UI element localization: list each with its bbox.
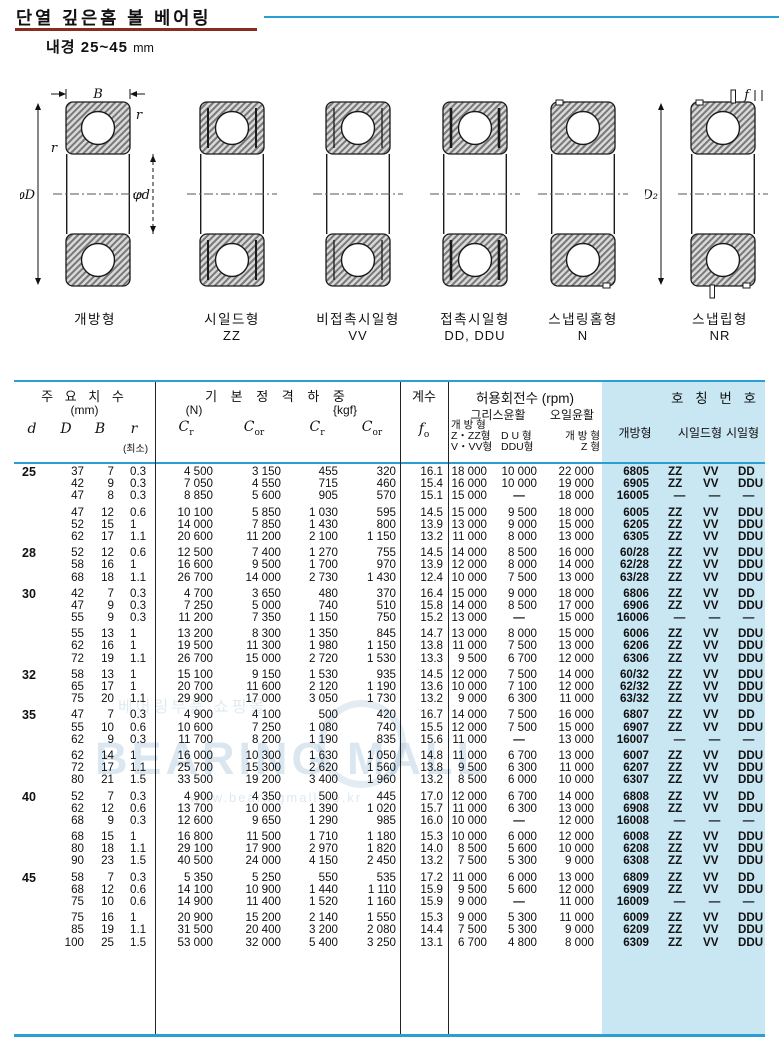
cell-cor-n: 4 100 [217, 709, 285, 721]
cell-cor-kgf: 595 [342, 507, 400, 519]
cell-cr-n: 11 200 [155, 612, 217, 624]
cell-d: 40 [14, 791, 50, 803]
header-rpm-title: 허용회전수 (rpm) [448, 387, 602, 407]
cell-d: 30 [14, 588, 50, 600]
cell-D: 100 [50, 937, 88, 949]
figure-noncontact-seal-type: 비접촉시일형 VV [308, 88, 408, 343]
cell-suffix-zz: ZZ [662, 937, 697, 949]
header-cr-n: Cr [160, 419, 212, 438]
cell-suffix-seal: — [732, 612, 765, 624]
header-designation-title: 호 칭 번 호 [614, 387, 760, 407]
header-col-B: B [86, 421, 114, 437]
svg-text:r: r [136, 108, 143, 123]
cell-B: 10 [88, 722, 118, 734]
table-row: 90231.540 50024 0004 1502 45013.27 5005 … [14, 855, 765, 867]
cell-cr-n: 8 850 [155, 490, 217, 502]
cell-cr-n: 40 500 [155, 855, 217, 867]
cell-fo: 13.2 [400, 774, 448, 786]
cell-suffix-vv: VV [697, 855, 732, 867]
cell-bearing-no: 16007 [602, 734, 662, 746]
cell-oil-open: 14 000 [542, 559, 602, 571]
cell-cr-kgf: 2 720 [285, 653, 342, 665]
cell-D: 75 [50, 896, 88, 908]
cell-cor-kgf: 2 080 [342, 924, 400, 936]
figure-label: 접촉시일형 [425, 308, 525, 328]
figure-snap-ring-type: fφD₂ 스냅립형 NR [645, 88, 779, 343]
cell-cr-n: 26 700 [155, 572, 217, 584]
cell-d: 25 [14, 466, 50, 478]
cell-suffix-zz: ZZ [662, 559, 697, 571]
cell-cor-kgf: 970 [342, 559, 400, 571]
cell-B: 7 [88, 872, 118, 884]
figure-label: 시일드형 [182, 308, 282, 328]
cell-fo: 15.9 [400, 896, 448, 908]
cell-d [14, 924, 50, 936]
cell-cr-kgf: 550 [285, 872, 342, 884]
cell-d [14, 531, 50, 543]
cell-cor-kgf: 535 [342, 872, 400, 884]
cell-cor-n: 32 000 [217, 937, 285, 949]
cell-cr-n: 16 600 [155, 559, 217, 571]
header-designation-open: 개방형 [605, 424, 665, 441]
figure-sublabel: N [533, 328, 633, 343]
cell-cr-kgf: 1 980 [285, 640, 342, 652]
cell-grease-open: 7 500 [448, 855, 496, 867]
cell-suffix-zz: — [662, 815, 697, 827]
cell-grease-du: 4 800 [496, 937, 542, 949]
cell-oil-open: 13 000 [542, 531, 602, 543]
cell-bearing-no: 6305 [602, 531, 662, 543]
cell-suffix-zz: — [662, 734, 697, 746]
cell-cr-kgf: 3 050 [285, 693, 342, 705]
row-block: 7516120 90015 2002 1401 55015.39 0005 30… [14, 912, 765, 949]
cell-grease-open: 12 000 [448, 559, 496, 571]
cell-B: 10 [88, 896, 118, 908]
cell-cor-kgf: 445 [342, 791, 400, 803]
cell-cr-kgf: 500 [285, 709, 342, 721]
cell-oil-open: 13 000 [542, 734, 602, 746]
cell-suffix-zz: — [662, 490, 697, 502]
divider-after-loads [400, 382, 401, 1034]
cell-grease-open: 11 000 [448, 531, 496, 543]
cell-suffix-vv: VV [697, 774, 732, 786]
cell-oil-open: 15 000 [542, 722, 602, 734]
header-cor-kgf: Cor [344, 419, 400, 438]
cell-D: 62 [50, 734, 88, 746]
cell-suffix-seal: DD [732, 791, 765, 803]
table-row: 6290.311 7008 2001 19083515.611 000—13 0… [14, 734, 765, 746]
cell-suffix-zz: ZZ [662, 709, 697, 721]
cell-bearing-no: 63/32 [602, 693, 662, 705]
cell-oil-open: 9 000 [542, 924, 602, 936]
cell-bearing-no: 6809 [602, 872, 662, 884]
svg-text:r: r [51, 141, 58, 156]
row-block: 5513113 2008 3001 35084514.713 0008 0001… [14, 628, 765, 665]
cell-d [14, 937, 50, 949]
cell-fo: 13.2 [400, 855, 448, 867]
cell-grease-open: 12 000 [448, 722, 496, 734]
cell-r: 1.5 [118, 855, 155, 867]
cell-cor-n: 11 400 [217, 896, 285, 908]
cell-suffix-seal: DDU [732, 937, 765, 949]
cell-suffix-seal: — [732, 734, 765, 746]
table-row: 5816116 6009 5001 70097013.912 0008 0001… [14, 559, 765, 571]
bearing-cross-section-n [533, 88, 633, 305]
table-row: 72191.126 70015 0002 7201 53013.39 5006 … [14, 653, 765, 665]
bearing-cross-section-ddu [425, 88, 525, 305]
cell-cor-kgf: 420 [342, 709, 400, 721]
figure-sublabel: NR [645, 328, 779, 343]
cell-r: 1 [118, 628, 155, 640]
cell-D: 62 [50, 531, 88, 543]
cell-d [14, 681, 50, 693]
cell-cor-kgf: 1 730 [342, 693, 400, 705]
cell-D: 47 [50, 507, 88, 519]
cell-suffix-zz: ZZ [662, 924, 697, 936]
cell-grease-open: 9 000 [448, 896, 496, 908]
subtitle-range: 25~45 [81, 39, 128, 56]
cell-D: 68 [50, 572, 88, 584]
cell-cor-n: 20 400 [217, 924, 285, 936]
cell-cr-kgf: 2 100 [285, 531, 342, 543]
bearing-spec-table: 주 요 치 수 (mm) d D B r (최소) 기 본 정 격 하 중 (N… [14, 380, 765, 1037]
cell-suffix-zz: ZZ [662, 791, 697, 803]
cell-grease-open: 11 000 [448, 640, 496, 652]
cell-cr-kgf: 3 200 [285, 924, 342, 936]
cell-grease-open: 11 000 [448, 734, 496, 746]
header-cr-kgf: Cr [291, 419, 343, 438]
cell-grease-du: 5 300 [496, 924, 542, 936]
cell-suffix-seal: DDU [732, 531, 765, 543]
cell-suffix-seal: DDU [732, 774, 765, 786]
cell-d: 28 [14, 547, 50, 559]
cell-suffix-seal: DD [732, 872, 765, 884]
cell-grease-du: 6 000 [496, 774, 542, 786]
cell-oil-open: 18 000 [542, 490, 602, 502]
title-horizontal-rule [264, 16, 779, 18]
cell-r: 1.1 [118, 653, 155, 665]
cell-r: 1.1 [118, 531, 155, 543]
divider-after-dimensions [155, 382, 156, 1034]
catalog-page: { "title": "단열 깊은홈 볼 베어링", "subtitle_lab… [0, 0, 779, 1048]
cell-fo: 14.5 [400, 507, 448, 519]
svg-text:φD: φD [20, 188, 36, 203]
figure-contact-seal-type: 접촉시일형 DD, DDU [425, 88, 525, 343]
row-block: 2852120.612 5007 4001 27075514.514 0008 … [14, 547, 765, 584]
cell-cor-n: 24 000 [217, 855, 285, 867]
cell-d [14, 815, 50, 827]
cell-B: 8 [88, 490, 118, 502]
cell-fo: 17.2 [400, 872, 448, 884]
cell-fo: 15.6 [400, 734, 448, 746]
cell-bearing-no: 16005 [602, 490, 662, 502]
cell-oil-open: 9 000 [542, 855, 602, 867]
cell-cr-kgf: 5 400 [285, 937, 342, 949]
cell-cr-kgf: 1 290 [285, 815, 342, 827]
cell-r: 1 [118, 640, 155, 652]
cell-cr-n: 31 500 [155, 924, 217, 936]
cell-suffix-vv: VV [697, 872, 732, 884]
cell-grease-open: 7 500 [448, 924, 496, 936]
cell-cor-n: 5 600 [217, 490, 285, 502]
cell-oil-open: 18 000 [542, 507, 602, 519]
cell-suffix-vv: VV [697, 653, 732, 665]
grease-open-line3: V・VV형 [451, 442, 499, 453]
cell-d: 35 [14, 709, 50, 721]
cell-r: 0.6 [118, 507, 155, 519]
table-row: 6216119 50011 3001 9801 15013.811 0007 5… [14, 640, 765, 652]
cell-cr-n: 53 000 [155, 937, 217, 949]
header-fo-symbol: fo [400, 421, 448, 440]
cell-grease-du: — [496, 612, 542, 624]
cell-fo: 15.2 [400, 612, 448, 624]
cell-r: 0.6 [118, 896, 155, 908]
oil-open-line2: Z 형 [542, 442, 600, 453]
cell-B: 7 [88, 791, 118, 803]
cell-suffix-vv: VV [697, 709, 732, 721]
cell-bearing-no: 63/28 [602, 572, 662, 584]
cell-cor-n: 9 500 [217, 559, 285, 571]
cell-d [14, 774, 50, 786]
cell-bearing-no: 6808 [602, 791, 662, 803]
cell-B: 23 [88, 855, 118, 867]
cell-B: 9 [88, 815, 118, 827]
cell-grease-du: — [496, 896, 542, 908]
header-grease-open-types: 개 방 형 Z・ZZ형 V・VV형 [451, 420, 499, 453]
cell-fo: 15.1 [400, 490, 448, 502]
cell-d [14, 507, 50, 519]
cell-fo: 13.1 [400, 937, 448, 949]
table-row: 62171.120 60011 2002 1001 15013.211 0008… [14, 531, 765, 543]
cell-d [14, 572, 50, 584]
cell-D: 47 [50, 490, 88, 502]
cell-oil-open: 16 000 [542, 709, 602, 721]
cell-r: 0.6 [118, 722, 155, 734]
table-row: 354770.34 9004 10050042016.714 0007 5001… [14, 709, 765, 721]
figure-sublabel: DD, DDU [425, 328, 525, 343]
cell-cor-kgf: 3 250 [342, 937, 400, 949]
cell-D: 72 [50, 653, 88, 665]
cell-cr-n: 4 900 [155, 709, 217, 721]
cell-cor-n: 7 250 [217, 722, 285, 734]
cell-cor-kgf: 740 [342, 722, 400, 734]
grease-du-line2: DDU형 [501, 442, 545, 453]
cell-bearing-no: 6308 [602, 855, 662, 867]
cell-cr-kgf: 1 700 [285, 559, 342, 571]
cell-grease-open: 15 000 [448, 490, 496, 502]
header-unit-n: (N) [164, 403, 224, 417]
cell-oil-open: 12 000 [542, 815, 602, 827]
bore-range-subtitle: 내경 25~45 mm [46, 36, 154, 57]
figure-label: 비접촉시일형 [308, 308, 408, 328]
figure-label: 스냅립형 [645, 308, 779, 328]
cell-fo: 13.3 [400, 653, 448, 665]
divider-after-factor [448, 382, 449, 1034]
cell-oil-open: 13 000 [542, 640, 602, 652]
cell-suffix-vv: — [697, 896, 732, 908]
row-block: 253770.34 5003 15045532016.118 00010 000… [14, 466, 765, 503]
cell-r: 0.3 [118, 612, 155, 624]
row-block: 405270.34 9004 35050044517.012 0006 7001… [14, 791, 765, 828]
cell-cr-n: 12 600 [155, 815, 217, 827]
cell-cor-kgf: 1 530 [342, 653, 400, 665]
cell-D: 55 [50, 612, 88, 624]
cell-cor-n: 17 000 [217, 693, 285, 705]
cell-d [14, 896, 50, 908]
cell-grease-du: 5 300 [496, 855, 542, 867]
table-row: 68181.126 70014 0002 7301 43012.410 0007… [14, 572, 765, 584]
cell-D: 62 [50, 640, 88, 652]
cell-cr-n: 19 500 [155, 640, 217, 652]
cell-r: 1 [118, 559, 155, 571]
cell-d [14, 762, 50, 774]
cell-grease-open: 8 500 [448, 774, 496, 786]
cell-cor-n: 9 650 [217, 815, 285, 827]
cell-cor-kgf: 1 160 [342, 896, 400, 908]
cell-grease-du: 7 500 [496, 722, 542, 734]
cell-cor-n: 19 200 [217, 774, 285, 786]
cell-cor-kgf: 835 [342, 734, 400, 746]
table-row: 4780.38 8505 60090557015.115 000—18 0001… [14, 490, 765, 502]
cell-oil-open: 11 000 [542, 693, 602, 705]
cell-B: 9 [88, 734, 118, 746]
cell-B: 19 [88, 924, 118, 936]
cell-bearing-no: 6306 [602, 653, 662, 665]
cell-B: 7 [88, 709, 118, 721]
cell-bearing-no: 6907 [602, 722, 662, 734]
cell-d [14, 519, 50, 531]
bearing-cross-section-nr: fφD₂ [645, 88, 779, 305]
header-unit-kgf: {kgf} [315, 403, 375, 417]
cell-r: 1.5 [118, 774, 155, 786]
cell-r: 1.1 [118, 572, 155, 584]
cell-grease-open: 15 000 [448, 507, 496, 519]
cell-cr-kgf: 1 520 [285, 896, 342, 908]
cell-cr-kgf: 905 [285, 490, 342, 502]
cell-r: 0.6 [118, 547, 155, 559]
cell-suffix-zz: ZZ [662, 531, 697, 543]
cell-cr-kgf: 2 730 [285, 572, 342, 584]
cell-cr-kgf: 3 400 [285, 774, 342, 786]
figure-sublabel: VV [308, 328, 408, 343]
cell-cor-n: 4 350 [217, 791, 285, 803]
cell-suffix-seal: DDU [732, 653, 765, 665]
cell-r: 1.5 [118, 937, 155, 949]
cell-bearing-no: 6309 [602, 937, 662, 949]
cell-suffix-seal: DDU [732, 640, 765, 652]
cell-grease-du: 6 000 [496, 872, 542, 884]
cell-cr-n: 10 600 [155, 722, 217, 734]
cell-suffix-seal: DDU [732, 559, 765, 571]
bearing-cross-section-zz [182, 88, 282, 305]
table-row: 100251.553 00032 0005 4003 25013.16 7004… [14, 937, 765, 949]
cell-grease-open: 9 500 [448, 653, 496, 665]
cell-d [14, 884, 50, 896]
cell-grease-du: 9 500 [496, 507, 542, 519]
cell-D: 85 [50, 924, 88, 936]
cell-D: 52 [50, 791, 88, 803]
figure-open-type: BrrφDφd 개방형 [20, 88, 170, 328]
cell-suffix-seal: — [732, 490, 765, 502]
cell-suffix-vv: VV [697, 531, 732, 543]
cell-cor-n: 11 200 [217, 531, 285, 543]
cell-oil-open: 10 000 [542, 774, 602, 786]
page-title: 단열 깊은홈 볼 베어링 [16, 5, 212, 30]
cell-cr-kgf: 1 080 [285, 722, 342, 734]
cell-suffix-zz: ZZ [662, 693, 697, 705]
cell-cr-kgf: 1 190 [285, 734, 342, 746]
header-col-r: r [120, 421, 148, 437]
figure-shield-type: 시일드형 ZZ [182, 88, 282, 343]
cell-suffix-seal: DDU [732, 924, 765, 936]
cell-fo: 13.2 [400, 531, 448, 543]
cell-cor-n: 11 300 [217, 640, 285, 652]
table-row: 47120.610 1005 8501 03059514.515 0009 50… [14, 507, 765, 519]
cell-B: 12 [88, 507, 118, 519]
cell-cr-kgf: 1 030 [285, 507, 342, 519]
cell-d: 32 [14, 669, 50, 681]
cell-grease-du: — [496, 815, 542, 827]
header-cor-n: Cor [223, 419, 285, 438]
cell-r: 0.3 [118, 791, 155, 803]
cell-d [14, 693, 50, 705]
cell-fo: 16.7 [400, 709, 448, 721]
cell-cr-kgf: 4 150 [285, 855, 342, 867]
subtitle-unit: mm [133, 41, 154, 55]
cell-grease-du: 8 000 [496, 559, 542, 571]
cell-fo: 13.8 [400, 640, 448, 652]
cell-grease-open: 10 000 [448, 572, 496, 584]
cell-fo: 16.0 [400, 815, 448, 827]
header-grease-du-types: D U 형 DDU형 [501, 431, 545, 453]
cell-oil-open: 13 000 [542, 572, 602, 584]
cell-suffix-vv: VV [697, 937, 732, 949]
cell-d [14, 831, 50, 843]
cell-D: 68 [50, 815, 88, 827]
cell-bearing-no: 62/28 [602, 559, 662, 571]
cell-suffix-zz: — [662, 896, 697, 908]
row-block: 304270.34 7003 65048037016.415 0009 0001… [14, 588, 765, 625]
cell-suffix-zz: ZZ [662, 653, 697, 665]
cell-D: 90 [50, 855, 88, 867]
cell-grease-du: 7 500 [496, 709, 542, 721]
cell-r: 0.3 [118, 734, 155, 746]
cell-B: 20 [88, 693, 118, 705]
cell-cr-n: 29 900 [155, 693, 217, 705]
cell-grease-open: 10 000 [448, 815, 496, 827]
cell-cr-n: 26 700 [155, 653, 217, 665]
cell-suffix-zz: ZZ [662, 722, 697, 734]
cell-r: 0.3 [118, 815, 155, 827]
cell-cor-kgf: 985 [342, 815, 400, 827]
cell-B: 18 [88, 572, 118, 584]
cell-bearing-no: 16009 [602, 896, 662, 908]
table-row: 455870.35 3505 25055053517.211 0006 0001… [14, 872, 765, 884]
figure-label: 개방형 [20, 308, 170, 328]
header-oil-open-types: 개 방 형 Z 형 [542, 431, 600, 453]
table-row: 6890.312 6009 6501 29098516.010 000—12 0… [14, 815, 765, 827]
cell-B: 16 [88, 640, 118, 652]
cell-grease-du: 6 700 [496, 653, 542, 665]
cell-r: 0.3 [118, 709, 155, 721]
cell-B: 16 [88, 559, 118, 571]
cell-suffix-vv: VV [697, 693, 732, 705]
table-body: 253770.34 5003 15045532016.118 00010 000… [14, 466, 765, 953]
cell-grease-du: 8 000 [496, 531, 542, 543]
cell-fo: 17.0 [400, 791, 448, 803]
cell-oil-open: 8 000 [542, 937, 602, 949]
cell-grease-open: 6 700 [448, 937, 496, 949]
